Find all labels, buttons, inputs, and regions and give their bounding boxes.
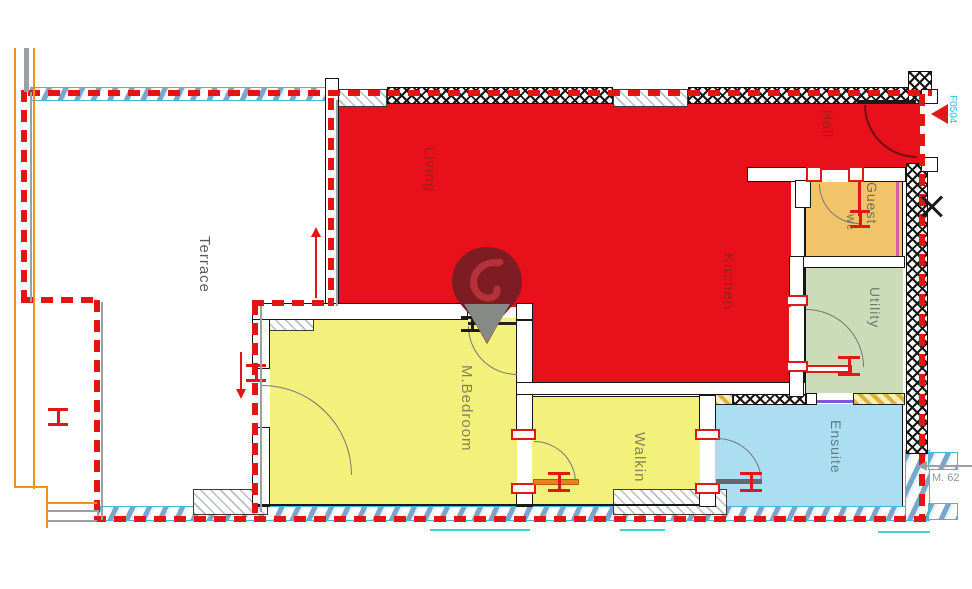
walkin-door-jamb-top	[511, 429, 536, 440]
boundary-dashed-bottom	[94, 516, 934, 522]
ensuite-window-sill-line	[817, 400, 853, 403]
guide-line	[30, 92, 32, 302]
ensuite-top-wall-hatch-right	[853, 393, 905, 405]
direction-arrow-down	[240, 352, 242, 390]
room-label-living: Living	[421, 147, 438, 192]
entry-arrow-icon	[931, 104, 948, 124]
room-label-hall: Hall	[820, 110, 836, 138]
terrace-rail-line	[33, 48, 35, 489]
boundary-dashed-left	[21, 90, 27, 302]
unit-code-label: F0504	[947, 95, 958, 123]
terrace-rail-line	[46, 502, 97, 504]
utility-door-hardware	[838, 356, 860, 376]
terrace-rail-line	[14, 48, 16, 487]
ensuite-door-jamb-bottom	[695, 483, 720, 494]
utility-door-jamb-bottom	[786, 361, 808, 372]
boundary-dashed-right	[919, 94, 925, 521]
direction-arrow-up-head	[311, 227, 321, 237]
measure-label: M. 62	[932, 472, 960, 484]
location-pin-icon	[449, 246, 525, 346]
dimension-line	[878, 531, 930, 533]
kitchen-bottom-wall	[516, 382, 806, 395]
entrance-lintel-line	[858, 100, 916, 104]
boundary-dashed-top	[28, 90, 932, 96]
room-label-wc: Wc	[844, 214, 855, 230]
envelope-dashed-bedroom-left	[252, 303, 258, 513]
envelope-dashed-terrace-right	[328, 98, 334, 306]
measure-leader-line	[925, 465, 972, 467]
location-pin-marker[interactable]	[449, 246, 525, 346]
guide-line	[46, 520, 97, 522]
dimension-line	[430, 529, 530, 531]
room-label-utility: Utility	[867, 287, 883, 328]
guide-line	[336, 100, 338, 306]
hall-wall-vertical-stub	[795, 180, 811, 208]
walkin-door-knob	[548, 472, 570, 492]
envelope-dashed-jog	[252, 300, 334, 306]
left-boundary-hardware	[48, 408, 68, 426]
guest-door-jamb-right	[848, 166, 864, 182]
guide-line	[101, 302, 103, 520]
bedroom-walkin-bottom-edge	[252, 504, 700, 506]
guest-wc-top-wall-right	[862, 167, 906, 182]
room-label-terrace: Terrace	[196, 236, 213, 293]
room-label-walkin: Walkin	[631, 432, 648, 482]
guest-wc-duct-line	[896, 182, 899, 256]
dimension-line	[620, 529, 665, 531]
guest-door-jamb-left	[806, 166, 822, 182]
terrace-rail-line	[46, 487, 48, 528]
guest-wc-bottom-wall	[799, 256, 905, 268]
measure-leader-arrowhead	[918, 461, 927, 471]
direction-arrow-down-head	[236, 389, 246, 399]
room-label-kitchen: Kitchen	[720, 253, 737, 310]
room-label-guest: Guest	[864, 182, 880, 224]
room-label-ensuite: Ensuite	[828, 420, 844, 474]
guide-line	[46, 510, 99, 512]
right-wall-stub-upper	[928, 452, 958, 470]
boundary-dashed-left-lower	[94, 300, 100, 522]
utility-door-jamb-top	[786, 295, 808, 306]
floor-plan: Terrace Living Kitchen Hall Guest Wc Uti…	[0, 0, 972, 589]
ensuite-door-knob	[740, 472, 762, 492]
terrace-rail-line	[14, 486, 48, 488]
ensuite-top-wall-gap	[806, 393, 817, 405]
direction-arrow-up	[315, 236, 317, 298]
room-kitchen-fill	[530, 307, 789, 385]
guide-line	[260, 306, 262, 512]
guide-line	[24, 48, 29, 92]
room-label-m-bedroom: M.Bedroom	[458, 365, 475, 452]
